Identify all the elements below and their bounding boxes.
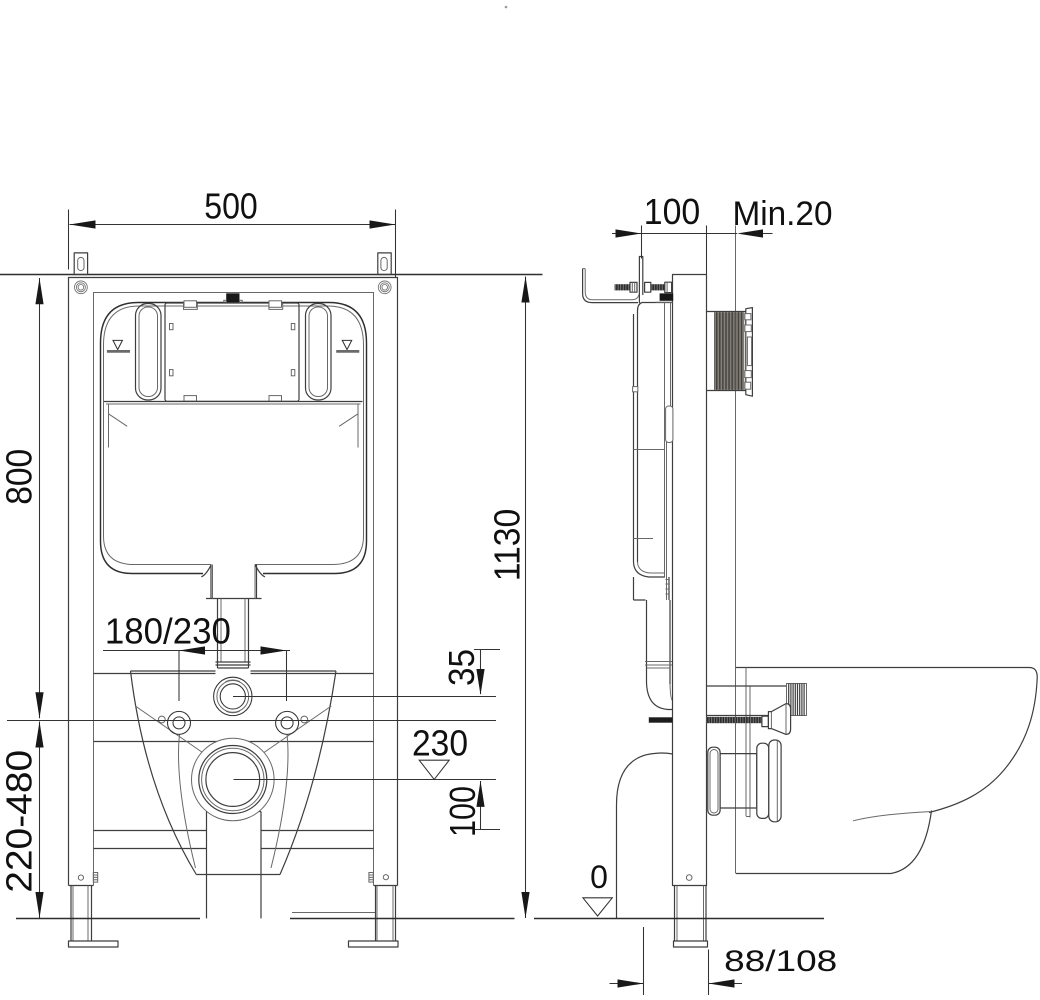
svg-text:180/230: 180/230: [105, 611, 231, 652]
svg-text:1130: 1130: [487, 509, 528, 582]
svg-text:500: 500: [204, 186, 258, 227]
svg-text:100: 100: [442, 786, 483, 837]
svg-text:220-480: 220-480: [0, 750, 40, 893]
svg-text:230: 230: [412, 723, 468, 764]
svg-text:800: 800: [0, 449, 40, 505]
svg-text:88/108: 88/108: [724, 945, 837, 978]
svg-text:35: 35: [441, 649, 482, 686]
svg-text:100: 100: [644, 191, 701, 232]
svg-text:Min.20: Min.20: [733, 195, 833, 233]
svg-text:0: 0: [590, 859, 608, 895]
